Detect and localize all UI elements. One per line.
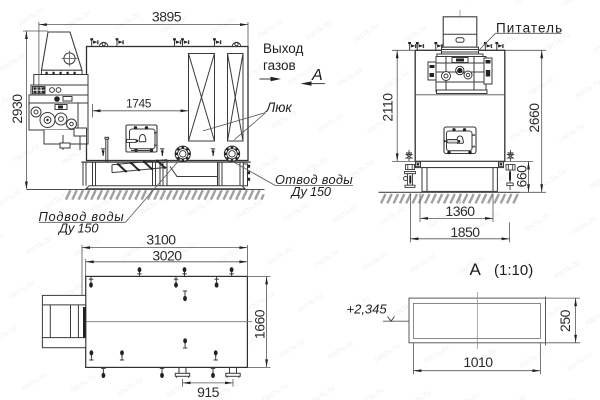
svg-text:3895: 3895 — [152, 9, 182, 25]
svg-text:2110: 2110 — [380, 93, 396, 122]
svg-text:1360: 1360 — [445, 203, 475, 219]
svg-text:Выход: Выход — [263, 41, 304, 56]
svg-text:1010: 1010 — [463, 354, 493, 370]
svg-text:Ду 150: Ду 150 — [290, 184, 332, 199]
svg-text:A: A — [470, 260, 482, 279]
svg-text:2930: 2930 — [9, 94, 25, 124]
svg-text:1745: 1745 — [126, 97, 152, 111]
svg-text:A: A — [311, 67, 323, 84]
svg-text:Ду 150: Ду 150 — [57, 221, 99, 236]
svg-text:3100: 3100 — [146, 232, 176, 248]
svg-text:газов: газов — [263, 58, 296, 73]
svg-text:250: 250 — [557, 309, 573, 332]
svg-text:915: 915 — [197, 384, 220, 400]
svg-text:Люк: Люк — [265, 100, 292, 115]
svg-text:1850: 1850 — [450, 224, 480, 240]
svg-text:(1:10): (1:10) — [494, 262, 533, 279]
svg-text:660: 660 — [514, 165, 530, 188]
svg-text:3020: 3020 — [152, 247, 182, 263]
svg-text:2660: 2660 — [526, 103, 542, 133]
svg-text:+2,345: +2,345 — [347, 302, 388, 317]
svg-text:1660: 1660 — [252, 309, 268, 339]
